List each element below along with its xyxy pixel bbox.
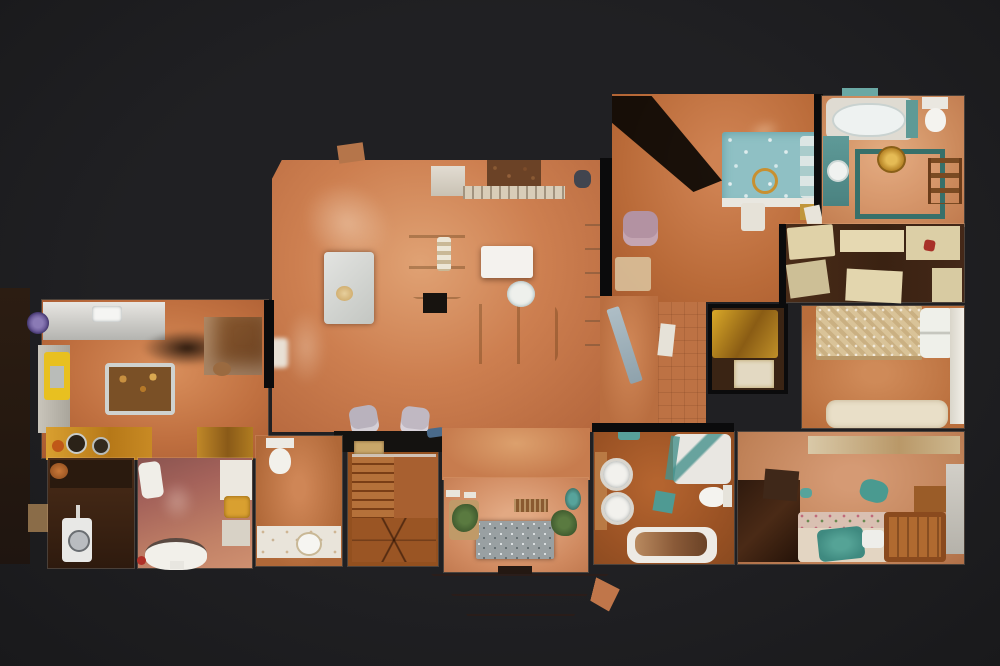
beige-rug (615, 257, 651, 291)
cabinet-lower (222, 520, 250, 546)
cream-wardrobe (787, 224, 836, 260)
white-object (170, 561, 184, 569)
left-shelf-fragment (28, 504, 50, 532)
corner-shower (673, 434, 731, 484)
gold-wardrobe (712, 310, 778, 358)
flower-pot (27, 312, 49, 334)
bench-table (50, 366, 64, 388)
headboard-panel (950, 308, 964, 424)
camera-tripod (574, 170, 591, 188)
mauve-armchair (623, 211, 658, 246)
brown-door-mat (514, 499, 548, 512)
cream-wardrobe (786, 259, 830, 298)
toilet (269, 448, 291, 474)
cream-wardrobe (932, 268, 962, 302)
gold-towels (224, 496, 250, 518)
hearth-ledge (463, 186, 565, 199)
potted-plant (551, 510, 577, 536)
cream-wardrobe (845, 269, 903, 304)
console-tray (354, 441, 384, 454)
cream-wardrobe (840, 230, 904, 252)
wall (592, 423, 734, 432)
round-basin (827, 160, 849, 182)
wall (264, 300, 274, 388)
orange-pot (52, 440, 64, 452)
towel-ladder (928, 158, 962, 204)
stair-winders (394, 454, 438, 518)
white-pillow (862, 530, 884, 548)
mirror-door (946, 464, 964, 554)
red-bag (923, 239, 936, 252)
cooking-pan (66, 433, 87, 454)
stair-landing (352, 518, 436, 562)
bathroom-cabinet (220, 460, 252, 500)
left-edge-room-fragment (0, 288, 30, 564)
washer-door (68, 530, 90, 552)
clay-pot (50, 463, 68, 479)
bathtub-interior (635, 532, 707, 556)
gold-cabinet (197, 427, 253, 460)
gold-medallion (752, 168, 778, 194)
potted-plant (565, 488, 581, 510)
threshold-shadow (498, 566, 532, 574)
fireplace (487, 160, 541, 188)
toilet (925, 108, 946, 132)
stair-upper-flight (352, 456, 394, 518)
banister (352, 454, 436, 457)
toilet-cistern (266, 438, 294, 448)
window-niche (431, 166, 465, 196)
fruit-bowl (336, 286, 353, 301)
wardrobe-shelf (734, 360, 774, 388)
floorplan-canvas (0, 0, 1000, 666)
toilet (699, 487, 725, 507)
east-wall-shelf (585, 202, 600, 347)
kitchen-sink (92, 306, 122, 322)
bed-pillows (920, 308, 954, 358)
cream-bench (826, 400, 948, 428)
round-basin (601, 492, 634, 525)
teal-bath-mat (652, 490, 675, 513)
coffee-table (481, 246, 533, 278)
wall (779, 224, 786, 306)
toilet-cistern (723, 485, 732, 507)
black-side-table (423, 293, 447, 313)
yellow-sofa (444, 304, 558, 364)
wall-top-sliver (337, 142, 365, 163)
wooden-bed-frame (884, 512, 946, 562)
bowl-basin (296, 532, 322, 556)
striped-throw (437, 237, 451, 271)
red-object (137, 556, 146, 565)
door-frame (446, 490, 460, 497)
dark-cabinet (763, 469, 799, 502)
cooking-pan (92, 437, 110, 455)
lace-bed (816, 306, 922, 360)
round-basin (600, 458, 633, 491)
teal-trim (842, 88, 878, 96)
hallway-floor[interactable] (442, 428, 590, 480)
wall (600, 158, 614, 304)
teal-throw (816, 526, 865, 563)
blanket-chest (741, 203, 765, 231)
stool (213, 362, 231, 376)
bathtub-basin (832, 103, 906, 137)
tub-teal-surround (906, 100, 918, 138)
brass-stool (877, 146, 906, 173)
door-frame (464, 492, 476, 498)
round-side-table (507, 281, 535, 307)
corridor-floor[interactable] (658, 302, 706, 432)
teal-cloth (800, 488, 812, 498)
wood-cabinet (914, 486, 946, 512)
kitchen-island (105, 363, 175, 415)
speckled-rug (476, 521, 554, 559)
desk-shelf (808, 436, 960, 454)
